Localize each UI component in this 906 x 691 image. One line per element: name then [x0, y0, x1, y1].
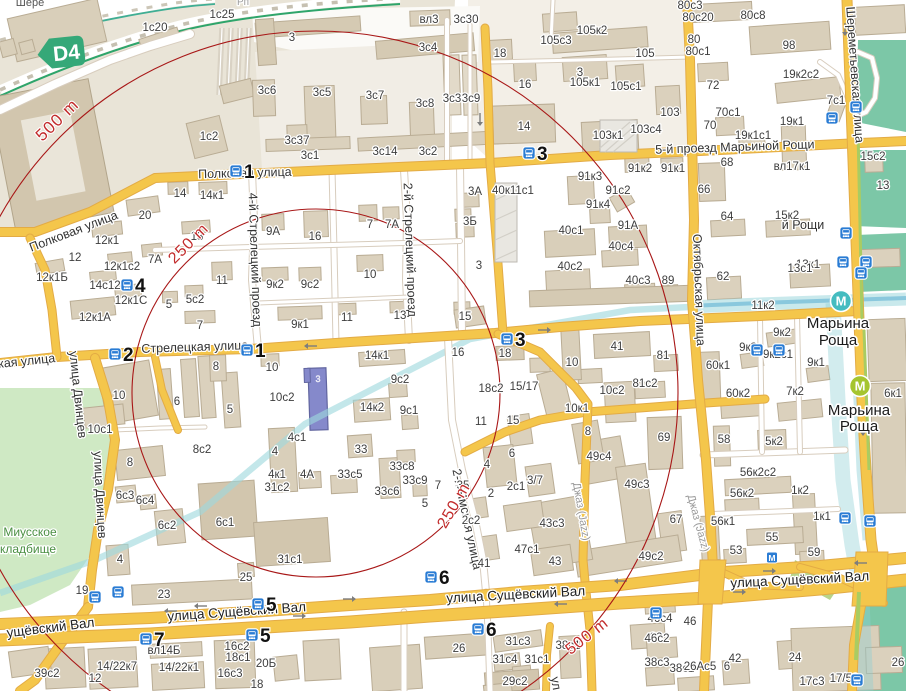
svg-text:3с5: 3с5 — [313, 87, 332, 99]
svg-text:56к1: 56к1 — [711, 516, 735, 528]
svg-text:46: 46 — [684, 616, 697, 628]
svg-text:14к1: 14к1 — [365, 350, 389, 362]
svg-text:16с3: 16с3 — [218, 668, 243, 680]
svg-text:4: 4 — [135, 276, 146, 297]
svg-text:6: 6 — [174, 396, 180, 408]
svg-text:70с1: 70с1 — [716, 107, 741, 119]
svg-text:3: 3 — [315, 374, 320, 384]
svg-text:80с8: 80с8 — [741, 10, 766, 22]
svg-text:33с9: 33с9 — [403, 475, 428, 487]
svg-text:9к2: 9к2 — [773, 327, 791, 339]
svg-text:81с2: 81с2 — [633, 378, 658, 390]
svg-text:43с3: 43с3 — [540, 518, 565, 530]
svg-text:6: 6 — [486, 620, 497, 641]
svg-text:56к2: 56к2 — [730, 488, 754, 500]
svg-text:70: 70 — [704, 120, 717, 132]
svg-text:D4: D4 — [52, 41, 81, 67]
svg-text:43: 43 — [549, 556, 562, 568]
svg-text:5: 5 — [260, 626, 271, 647]
svg-text:18с2: 18с2 — [479, 383, 504, 395]
svg-text:81: 81 — [657, 350, 670, 362]
svg-text:58: 58 — [718, 434, 731, 446]
svg-text:103: 103 — [660, 107, 679, 119]
svg-text:49с3: 49с3 — [625, 479, 650, 491]
svg-text:7: 7 — [435, 480, 441, 492]
svg-text:29с2: 29с2 — [503, 676, 528, 688]
svg-text:вл17к1: вл17к1 — [774, 161, 811, 173]
svg-text:80с20: 80с20 — [682, 12, 713, 24]
svg-text:23: 23 — [158, 589, 171, 601]
svg-text:5с2: 5с2 — [186, 294, 205, 306]
svg-text:3с4: 3с4 — [419, 42, 438, 54]
svg-text:31с2: 31с2 — [265, 482, 290, 494]
svg-text:1: 1 — [244, 162, 255, 183]
svg-text:4с1: 4с1 — [288, 432, 307, 444]
svg-text:49с4: 49с4 — [587, 451, 613, 463]
svg-text:33с5: 33с5 — [338, 469, 363, 481]
svg-text:2: 2 — [123, 345, 134, 366]
svg-text:24: 24 — [789, 652, 802, 664]
svg-text:72: 72 — [707, 80, 720, 92]
svg-text:3с7: 3с7 — [366, 90, 385, 102]
svg-text:14/22к7: 14/22к7 — [97, 661, 137, 673]
svg-text:41: 41 — [478, 558, 491, 570]
svg-text:26: 26 — [892, 657, 905, 669]
svg-text:38с3: 38с3 — [645, 657, 670, 669]
svg-text:1к2: 1к2 — [791, 485, 809, 497]
svg-text:12: 12 — [69, 252, 82, 264]
svg-text:6: 6 — [724, 661, 730, 673]
svg-text:5: 5 — [266, 595, 277, 616]
svg-text:12к1: 12к1 — [95, 235, 119, 247]
svg-text:8с2: 8с2 — [193, 444, 212, 456]
svg-text:13: 13 — [877, 180, 890, 192]
svg-text:9А: 9А — [266, 226, 280, 238]
svg-text:49с2: 49с2 — [639, 551, 664, 563]
svg-text:9с1: 9с1 — [400, 405, 419, 417]
svg-text:2: 2 — [488, 488, 494, 500]
svg-text:14с12: 14с12 — [89, 280, 120, 292]
svg-text:8: 8 — [127, 457, 133, 469]
svg-text:7А: 7А — [148, 254, 162, 266]
svg-text:4: 4 — [117, 554, 124, 566]
svg-text:25: 25 — [240, 572, 253, 584]
svg-text:13: 13 — [394, 310, 407, 322]
svg-text:19к1с1: 19к1с1 — [735, 130, 771, 142]
svg-text:11: 11 — [341, 312, 353, 324]
svg-text:M: M — [855, 379, 866, 394]
svg-text:9к1: 9к1 — [291, 319, 309, 331]
svg-text:3с9: 3с9 — [462, 93, 481, 105]
svg-text:39с2: 39с2 — [35, 668, 60, 680]
svg-text:11: 11 — [475, 416, 487, 428]
svg-text:13с1: 13с1 — [788, 263, 813, 275]
svg-text:17с3: 17с3 — [800, 676, 825, 688]
svg-text:7: 7 — [367, 219, 373, 231]
svg-text:M: M — [768, 553, 775, 563]
svg-text:7: 7 — [154, 630, 165, 651]
svg-text:10: 10 — [266, 362, 279, 374]
svg-text:105с1: 105с1 — [610, 81, 641, 93]
svg-text:103к1: 103к1 — [593, 130, 624, 142]
svg-text:55: 55 — [766, 532, 779, 544]
svg-text:3: 3 — [289, 32, 295, 44]
svg-text:19к1: 19к1 — [780, 116, 804, 128]
svg-text:4: 4 — [272, 446, 279, 458]
svg-text:80: 80 — [688, 34, 701, 46]
svg-text:3с6: 3с6 — [258, 85, 277, 97]
svg-text:8: 8 — [213, 361, 219, 373]
svg-text:15/17: 15/17 — [510, 381, 539, 393]
svg-text:10с2: 10с2 — [600, 385, 625, 397]
svg-text:3с1: 3с1 — [301, 150, 320, 162]
svg-text:1к1: 1к1 — [813, 511, 831, 523]
svg-text:14/22к1: 14/22к1 — [159, 662, 199, 674]
svg-text:105с3: 105с3 — [540, 35, 571, 47]
svg-text:20Б: 20Б — [256, 658, 276, 670]
svg-text:11к2: 11к2 — [751, 300, 774, 312]
svg-text:1: 1 — [255, 341, 266, 362]
svg-text:16: 16 — [452, 347, 465, 359]
svg-text:59: 59 — [808, 547, 821, 559]
svg-text:66: 66 — [698, 184, 711, 196]
svg-text:16: 16 — [309, 231, 322, 243]
svg-text:3с14: 3с14 — [373, 146, 399, 158]
svg-text:64: 64 — [721, 211, 734, 223]
svg-text:31с1: 31с1 — [525, 654, 550, 666]
svg-text:6: 6 — [439, 568, 450, 589]
svg-text:40с3: 40с3 — [626, 275, 651, 287]
svg-text:7к2: 7к2 — [786, 386, 804, 398]
svg-text:6с4: 6с4 — [136, 495, 155, 507]
svg-text:4А: 4А — [300, 469, 314, 481]
svg-text:18: 18 — [499, 348, 512, 360]
svg-text:5: 5 — [227, 404, 233, 416]
svg-text:60к2: 60к2 — [726, 388, 750, 400]
svg-text:Марьина: Марьина — [807, 315, 870, 332]
svg-text:91к4: 91к4 — [586, 199, 611, 211]
svg-text:26Ас5: 26Ас5 — [684, 661, 717, 673]
svg-text:41: 41 — [611, 341, 624, 353]
svg-text:5: 5 — [422, 498, 428, 510]
svg-text:60к1: 60к1 — [706, 360, 730, 372]
svg-text:3Б: 3Б — [463, 216, 477, 228]
svg-text:12: 12 — [89, 673, 102, 685]
svg-text:15к2: 15к2 — [775, 210, 799, 222]
svg-text:33с6: 33с6 — [375, 486, 400, 498]
svg-text:вл3: вл3 — [420, 14, 439, 26]
svg-text:7А: 7А — [385, 219, 399, 231]
svg-text:10: 10 — [113, 390, 126, 402]
svg-text:2с2: 2с2 — [462, 515, 481, 527]
svg-text:105к2: 105к2 — [577, 25, 608, 37]
svg-text:19: 19 — [76, 585, 89, 597]
svg-text:8: 8 — [585, 426, 591, 438]
svg-text:14к1: 14к1 — [200, 190, 224, 202]
svg-text:89: 89 — [662, 275, 675, 287]
svg-text:91с2: 91с2 — [606, 185, 631, 197]
svg-text:18: 18 — [494, 48, 507, 60]
svg-text:67: 67 — [670, 514, 683, 526]
svg-text:18с1: 18с1 — [226, 652, 251, 664]
svg-text:14к2: 14к2 — [360, 402, 384, 414]
svg-text:14: 14 — [518, 121, 531, 133]
svg-text:3с3: 3с3 — [443, 93, 462, 105]
svg-text:7: 7 — [197, 320, 203, 332]
svg-text:91к2: 91к2 — [628, 163, 652, 175]
svg-text:105: 105 — [635, 48, 654, 60]
svg-text:4: 4 — [484, 459, 491, 471]
svg-text:42: 42 — [729, 653, 742, 665]
svg-text:40с2: 40с2 — [558, 261, 583, 273]
svg-text:53: 53 — [730, 545, 743, 557]
svg-text:12к1Б: 12к1Б — [36, 272, 68, 284]
svg-text:Рп: Рп — [237, 0, 249, 8]
svg-text:91к1: 91к1 — [661, 163, 685, 175]
svg-text:14: 14 — [174, 188, 187, 200]
svg-text:18: 18 — [251, 679, 264, 691]
svg-text:33с8: 33с8 — [390, 461, 415, 473]
svg-text:1с25: 1с25 — [210, 9, 235, 21]
svg-text:20: 20 — [139, 210, 152, 222]
svg-text:3с8: 3с8 — [416, 98, 435, 110]
svg-text:6с2: 6с2 — [158, 520, 177, 532]
svg-text:31с4: 31с4 — [493, 654, 519, 666]
svg-text:9с2: 9с2 — [391, 374, 410, 386]
svg-text:3: 3 — [515, 330, 526, 351]
svg-text:40с1: 40с1 — [559, 225, 584, 237]
svg-text:6с3: 6с3 — [116, 490, 135, 502]
svg-text:31с3: 31с3 — [506, 636, 531, 648]
svg-text:47с1: 47с1 — [515, 544, 540, 556]
svg-text:69: 69 — [658, 432, 671, 444]
svg-text:33: 33 — [355, 444, 368, 456]
svg-text:19к2с2: 19к2с2 — [783, 69, 819, 81]
svg-text:3: 3 — [476, 260, 482, 272]
svg-text:кладбище: кладбище — [0, 542, 56, 556]
svg-text:91к3: 91к3 — [578, 171, 602, 183]
svg-text:15: 15 — [459, 311, 472, 323]
svg-text:Марьина: Марьина — [828, 402, 891, 419]
svg-text:1с2: 1с2 — [200, 131, 219, 143]
svg-text:16: 16 — [519, 79, 532, 91]
svg-text:10: 10 — [566, 357, 579, 369]
svg-text:68: 68 — [721, 157, 734, 169]
svg-text:Роща: Роща — [819, 332, 858, 349]
svg-text:M: M — [836, 294, 847, 309]
svg-text:12к1с2: 12к1с2 — [104, 261, 140, 273]
svg-text:6с1: 6с1 — [216, 517, 235, 529]
svg-text:5: 5 — [166, 299, 172, 311]
svg-text:105к1: 105к1 — [570, 77, 601, 89]
svg-text:3с30: 3с30 — [454, 14, 479, 26]
svg-text:11: 11 — [216, 275, 228, 287]
svg-text:3с2: 3с2 — [419, 146, 438, 158]
svg-text:12к1А: 12к1А — [79, 312, 111, 324]
svg-text:6к1: 6к1 — [884, 388, 902, 400]
svg-text:3/7: 3/7 — [527, 475, 543, 487]
svg-text:3А: 3А — [468, 186, 482, 198]
svg-text:ул: ул — [548, 676, 564, 691]
svg-text:5к2: 5к2 — [765, 436, 783, 448]
svg-text:Роща: Роща — [840, 418, 879, 435]
svg-text:80с1: 80с1 — [686, 46, 711, 58]
svg-text:10с2: 10с2 — [270, 392, 295, 404]
svg-text:6: 6 — [509, 448, 515, 460]
svg-text:9с2: 9с2 — [301, 279, 320, 291]
svg-text:7с1: 7с1 — [827, 95, 846, 107]
svg-text:56к2с2: 56к2с2 — [740, 467, 776, 479]
svg-text:26: 26 — [453, 643, 466, 655]
svg-text:10к1: 10к1 — [565, 403, 589, 415]
svg-text:91А: 91А — [618, 220, 639, 232]
svg-text:40к11с1: 40к11с1 — [492, 185, 534, 197]
svg-text:Шере: Шере — [16, 0, 44, 9]
svg-text:3с37: 3с37 — [285, 135, 310, 147]
svg-text:1с20: 1с20 — [143, 22, 168, 34]
svg-text:10: 10 — [364, 269, 377, 281]
svg-text:Миусское: Миусское — [3, 525, 57, 539]
svg-text:46с2: 46с2 — [645, 633, 670, 645]
svg-text:9к2: 9к2 — [266, 279, 284, 291]
svg-text:4к1: 4к1 — [268, 469, 286, 481]
svg-text:15с2: 15с2 — [861, 151, 886, 163]
svg-text:9к1: 9к1 — [807, 357, 825, 369]
svg-text:98: 98 — [783, 40, 796, 52]
svg-text:103с4: 103с4 — [630, 124, 662, 136]
svg-text:10с1: 10с1 — [88, 424, 113, 436]
svg-text:31с1: 31с1 — [278, 554, 303, 566]
svg-text:2с1: 2с1 — [507, 481, 526, 493]
svg-text:62: 62 — [717, 271, 730, 283]
svg-text:15: 15 — [507, 415, 520, 427]
svg-text:40с4: 40с4 — [609, 241, 635, 253]
svg-text:80с3: 80с3 — [678, 0, 703, 12]
svg-text:3: 3 — [537, 144, 548, 165]
